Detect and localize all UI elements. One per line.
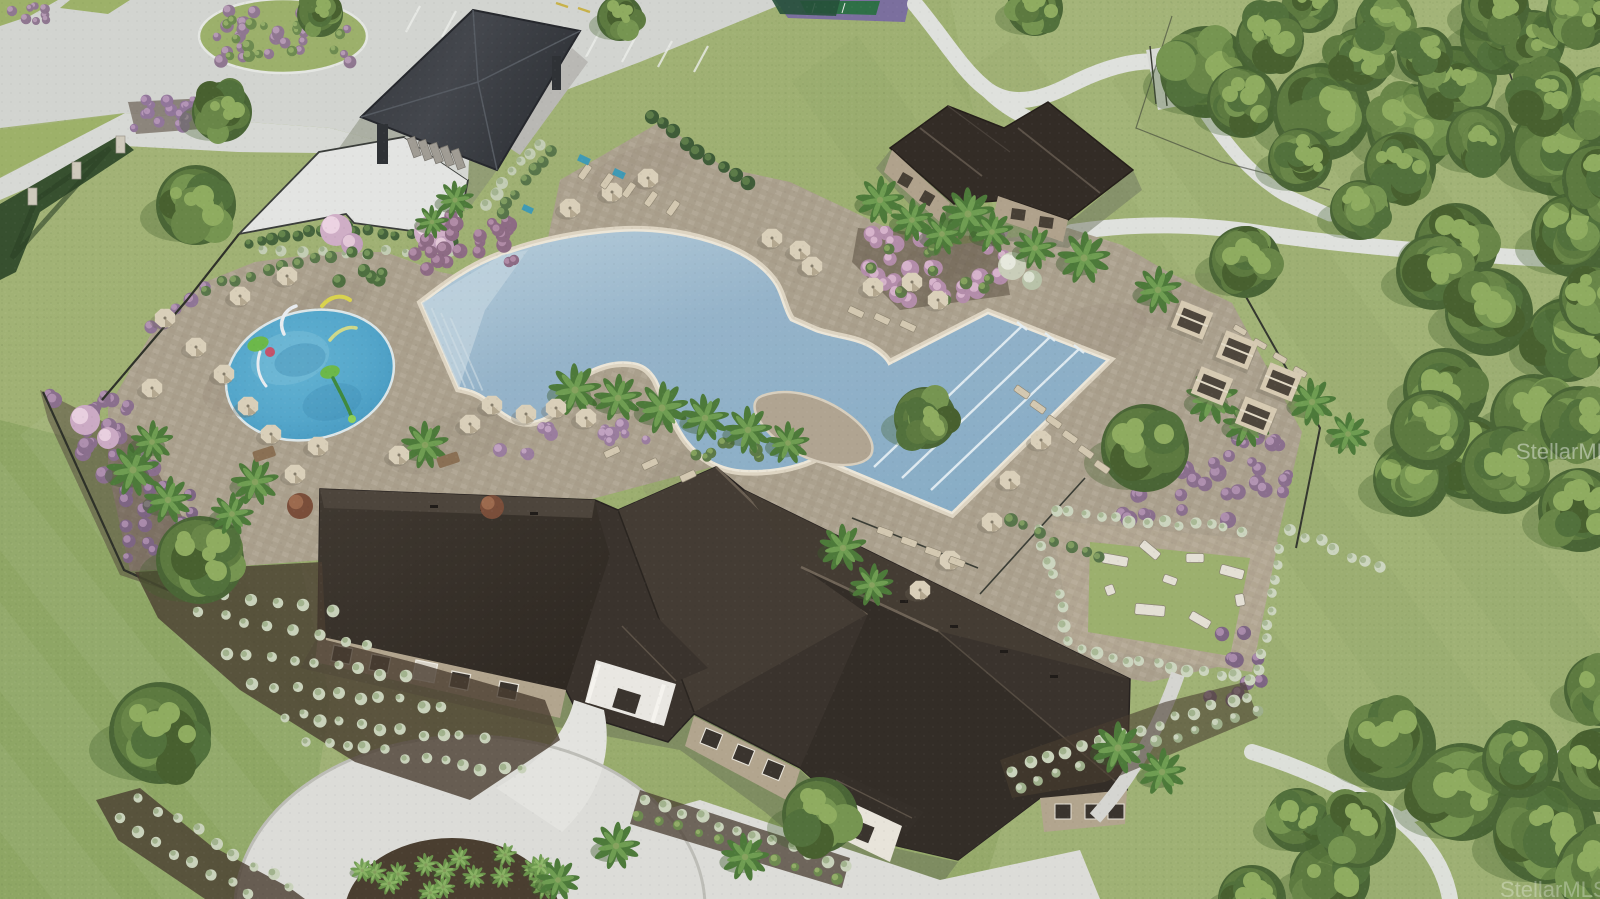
svg-text:StellarMLS: StellarMLS	[1516, 439, 1600, 464]
svg-text:StellarMLS: StellarMLS	[1500, 877, 1600, 899]
